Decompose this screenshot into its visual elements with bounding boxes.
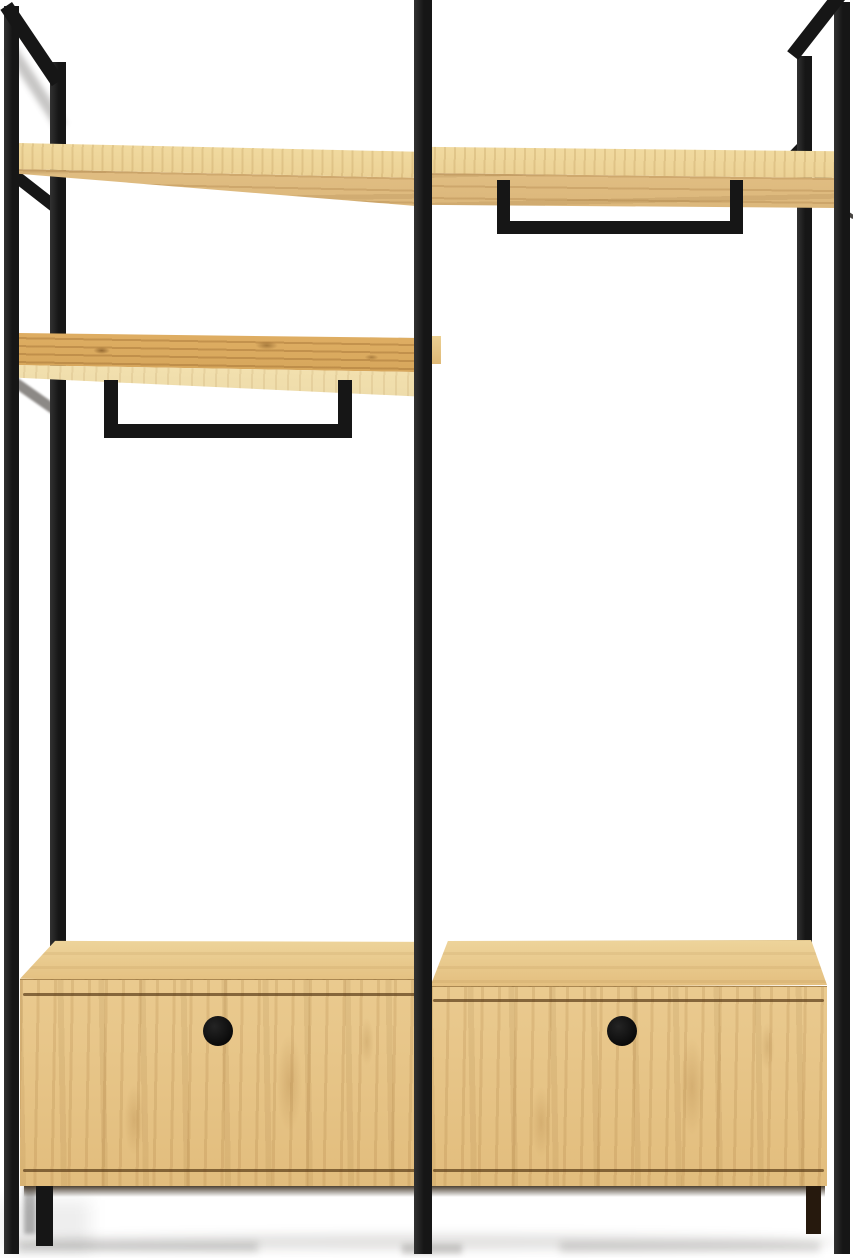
drawer-groove-bottom-left: [23, 1169, 425, 1172]
shelf-wood: [18, 143, 428, 207]
frame-post-left-back: [4, 6, 19, 1254]
drawer-cabinet-right-top: [430, 938, 827, 988]
hanging-rail-left-section: [104, 380, 352, 438]
drawer-handle-right-cutout: [607, 1016, 637, 1046]
frame-post-left-front: [50, 62, 66, 946]
drawer-groove-top-right: [433, 999, 824, 1002]
drawer-groove-bottom-right: [433, 1169, 824, 1172]
frame-leg-left-front: [36, 1186, 53, 1246]
frame-post-center: [414, 0, 432, 1254]
floor-shadow: [18, 1242, 258, 1252]
wardrobe-product-photo: [0, 0, 853, 1258]
middle-shelf-end-sliver: [432, 336, 441, 364]
hanging-rail-right-section: [497, 180, 743, 234]
drawer-groove-top-left: [23, 993, 425, 996]
frame-post-right-back: [834, 2, 850, 1254]
floor-shadow: [560, 1242, 820, 1252]
cabinet-underside-shadow-right: [432, 1185, 825, 1197]
drawer-handle-left-cutout: [203, 1016, 233, 1046]
cabinet-underside-shadow-left: [24, 1185, 426, 1197]
drawer-cabinet-right-front: [430, 986, 827, 1186]
frame-leg-right-front: [806, 1186, 821, 1234]
top-shelf-left-section: [18, 143, 428, 207]
drawer-cabinet-left-front: [20, 979, 428, 1186]
floor-shadow: [402, 1244, 462, 1254]
